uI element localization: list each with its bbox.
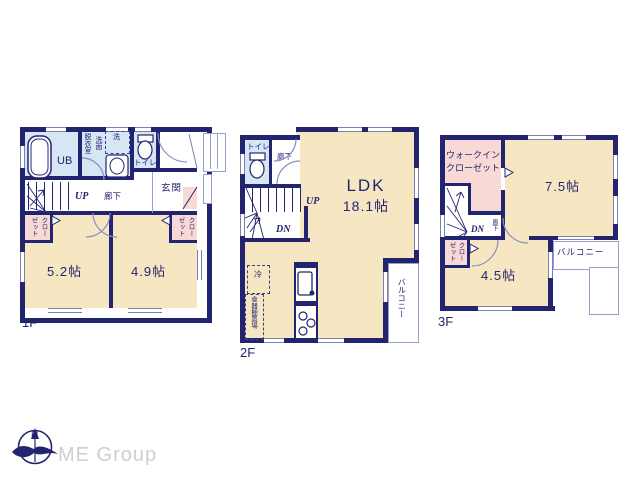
1f-porch-steps: [203, 133, 226, 172]
2f-window: [240, 214, 245, 236]
1f-up-label: UP: [75, 191, 88, 203]
3f-window: [528, 135, 554, 140]
2f-wall: [245, 238, 310, 242]
3f-room-b-label: 4.5帖: [481, 269, 516, 284]
2f-fridge-label: 冷: [254, 270, 262, 279]
1f-dressing-label: 脱衣室: [83, 133, 91, 179]
2f-balcony-label: バルコニー: [397, 278, 406, 334]
2f-ldk-size-label: 18.1帖: [330, 198, 402, 214]
1f-entry-step: [203, 174, 212, 204]
3f-wall: [468, 211, 501, 215]
1f-wall: [130, 132, 134, 180]
3f-balcony-door: [558, 236, 594, 240]
1f-window: [20, 146, 25, 168]
1f-closet-wall: [25, 240, 53, 243]
2f-floor-label: 2F: [240, 345, 255, 360]
3f-wic-label-1: ウォークイン: [445, 150, 501, 160]
3f-wic-door-gap: [501, 168, 505, 190]
3f-window: [562, 135, 586, 140]
3f-closet-wall: [467, 240, 470, 268]
2f-toilet-label: トイレ: [247, 143, 270, 152]
3f-window: [613, 155, 618, 179]
floorplan-page: { "colors": { "wall": "#23246f", "room_f…: [0, 0, 640, 480]
3f-window: [478, 306, 512, 311]
2f-hallway-label: 廊下: [277, 153, 292, 162]
2f-stair-treads: [252, 184, 306, 212]
2f-kitchen-cap: [294, 262, 318, 268]
1f-hallway-label: 廊下: [104, 192, 121, 202]
3f-hallway-label: 廊下: [490, 219, 497, 235]
3f-closet-label: クローゼット: [447, 242, 465, 264]
1f-floor-label: 1F: [22, 315, 37, 330]
1f-window: [197, 250, 202, 280]
1f-porch-step-line: [217, 134, 218, 169]
3f-window: [613, 196, 618, 224]
2f-window: [240, 154, 245, 174]
3f-closet-wall: [445, 265, 470, 268]
1f-shoe-cabinet: [183, 187, 197, 209]
1f-wall: [78, 132, 82, 180]
2f-window: [368, 127, 392, 132]
1f-ub-label: UB: [57, 155, 72, 168]
3f-wic-label-2: クローゼット: [445, 163, 501, 173]
2f-window: [414, 168, 419, 198]
3f-wall: [613, 135, 618, 240]
3f-stairs: [445, 186, 468, 240]
1f-window: [135, 127, 151, 132]
1f-window: [48, 308, 82, 313]
compass-icon: N: [12, 428, 58, 464]
compass-north-label: N: [31, 429, 38, 440]
1f-closet-wall: [50, 215, 53, 243]
1f-laundry-label: 洗: [113, 134, 120, 142]
2f-up-label: UP: [306, 196, 319, 208]
3f-balcony-label: バルコニー: [557, 248, 604, 258]
3f-floor-label: 3F: [438, 314, 453, 329]
1f-stair-treads: [28, 182, 76, 210]
3f-dn-label: DN: [471, 224, 484, 234]
2f-window: [414, 224, 419, 250]
1f-room-b-label: 4.9帖: [131, 265, 166, 280]
2f-window: [264, 338, 284, 343]
1f-wall: [132, 168, 197, 172]
1f-window: [20, 252, 25, 282]
2f-window: [338, 127, 362, 132]
1f-porch-step-line: [210, 134, 211, 169]
1f-entrance-label: 玄関: [161, 184, 182, 195]
2f-dn-label: DN: [276, 224, 290, 236]
3f-room-a-label: 7.5帖: [545, 180, 580, 195]
1f-wall: [156, 132, 160, 172]
2f-kitchen-cap: [294, 301, 318, 306]
3f-window: [548, 252, 553, 278]
2f-window: [318, 338, 344, 343]
3f-balcony-lower: [589, 267, 619, 315]
1f-closet-left-label: クローゼット: [28, 217, 48, 239]
1f-closet-wall: [169, 240, 197, 243]
1f-wall: [25, 176, 132, 180]
1f-closet-right-label: クローゼット: [175, 217, 195, 239]
1f-room-a-label: 5.2帖: [47, 265, 82, 280]
1f-entrance-step-line: [152, 172, 153, 213]
1f-washstand-label: 洗面: [94, 136, 102, 168]
1f-toilet-label: トイレ: [134, 159, 157, 168]
brand-logo-text: ME Group: [58, 444, 157, 467]
3f-hall-door-gap: [505, 236, 529, 240]
2f-balcony-door: [383, 272, 388, 302]
3f-window: [440, 215, 445, 237]
2f-ldk-label: LDK: [330, 176, 402, 196]
3f-wall: [501, 140, 505, 240]
2f-cupboard-label: 食器棚置場: [249, 296, 256, 336]
1f-wall: [109, 215, 113, 308]
1f-window: [46, 127, 66, 132]
1f-window: [128, 308, 162, 313]
